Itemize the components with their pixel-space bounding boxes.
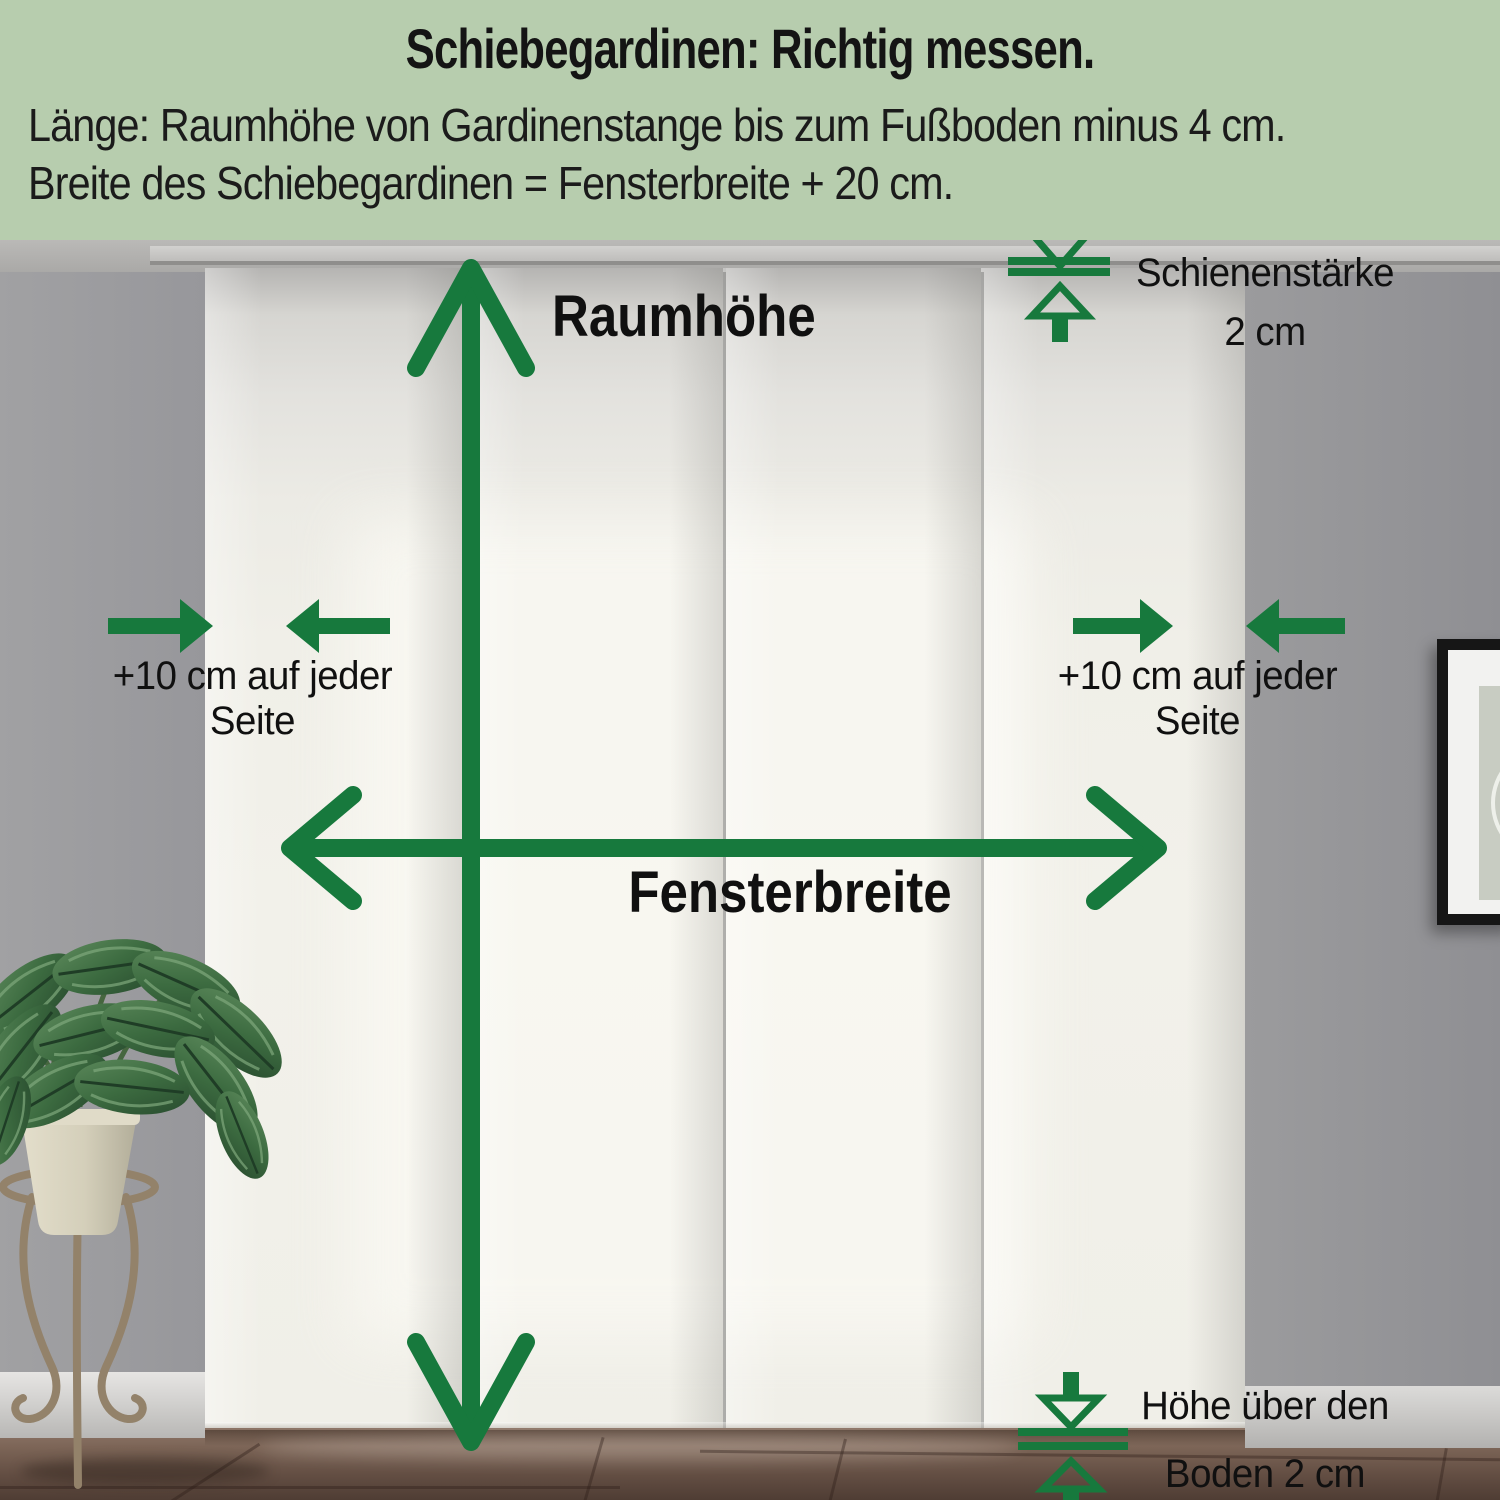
floor-gap-line2: Boden 2 cm bbox=[1102, 1440, 1428, 1500]
side-margin-left-line1: +10 cm auf jeder bbox=[92, 654, 414, 699]
panel-seam bbox=[981, 272, 984, 1430]
baseboard-left bbox=[0, 1372, 205, 1438]
floor-gap-line1: Höhe über den bbox=[1102, 1372, 1428, 1440]
side-margin-left-line2: Seite bbox=[92, 699, 414, 744]
panel-seam bbox=[468, 272, 471, 1430]
rail-thickness-line1: Schienenstärke bbox=[1102, 244, 1428, 303]
floor-gap-label: Höhe über den Boden 2 cm bbox=[1102, 1372, 1428, 1500]
room-height-label: Raumhöhe bbox=[552, 286, 816, 348]
rail-thickness-label: Schienenstärke 2 cm bbox=[1102, 244, 1428, 362]
side-margin-right-line2: Seite bbox=[1037, 699, 1359, 744]
curtain-panel bbox=[981, 268, 1245, 1432]
artwork-circle bbox=[1491, 744, 1500, 862]
width-instruction: Breite des Schiebegardinen = Fensterbrei… bbox=[28, 156, 953, 210]
side-margin-label-right: +10 cm auf jeder Seite bbox=[1037, 654, 1359, 744]
curtain-panel bbox=[468, 268, 726, 1432]
frame-mat bbox=[1448, 650, 1500, 914]
window-width-label: Fensterbreite bbox=[570, 862, 1010, 924]
rail-thickness-line2: 2 cm bbox=[1102, 303, 1428, 362]
page-title: Schiebegardinen: Richtig messen. bbox=[165, 16, 1335, 81]
floor-reflection bbox=[260, 1434, 1020, 1460]
measuring-guide-image: Raumhöhe Fensterbreite Schienenstärke 2 … bbox=[0, 0, 1500, 1500]
plant-shadow bbox=[20, 1458, 270, 1484]
left-wall bbox=[0, 272, 205, 1432]
picture-frame bbox=[1437, 639, 1500, 925]
curtain-panel bbox=[205, 268, 463, 1432]
frame-artwork bbox=[1479, 686, 1500, 900]
curtain-panel bbox=[723, 268, 981, 1432]
side-margin-label-left: +10 cm auf jeder Seite bbox=[92, 654, 414, 744]
panel-seam bbox=[723, 272, 726, 1430]
length-instruction: Länge: Raumhöhe von Gardinenstange bis z… bbox=[28, 98, 1285, 152]
tile-grout-line bbox=[0, 1486, 620, 1489]
side-margin-right-line1: +10 cm auf jeder bbox=[1037, 654, 1359, 699]
